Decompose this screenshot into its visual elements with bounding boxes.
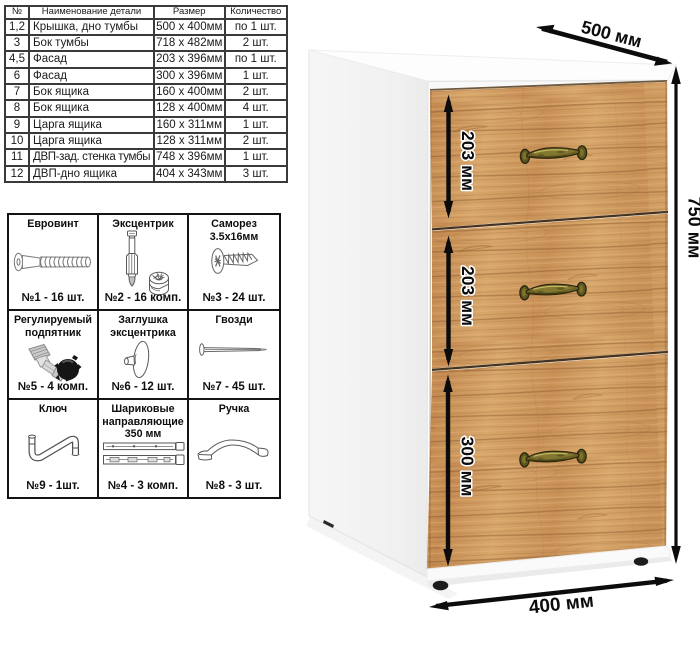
svg-text:203 мм: 203 мм [458,131,478,191]
svg-text:203 мм: 203 мм [458,266,478,326]
svg-text:300 мм: 300 мм [458,437,478,497]
svg-text:750 мм: 750 мм [685,197,700,259]
